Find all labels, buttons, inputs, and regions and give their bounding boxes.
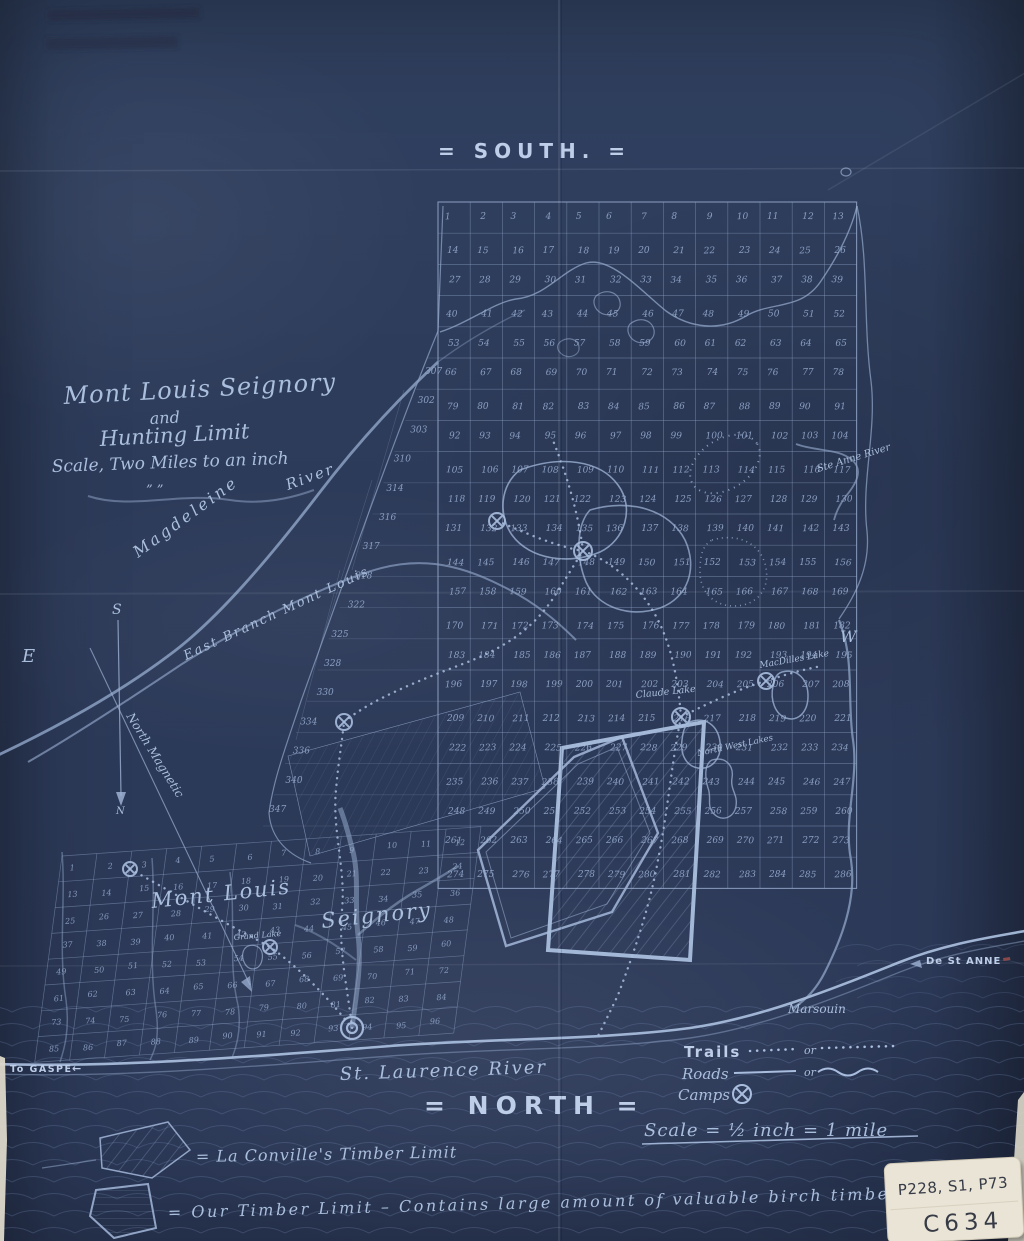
lot-number: 75 — [119, 1015, 130, 1025]
lot-number: 124 — [639, 494, 657, 505]
east-branch-label: East Branch Mont Louis — [180, 564, 372, 664]
lot-number: 153 — [739, 558, 757, 569]
lot-number: 3 — [510, 212, 516, 222]
lot-number: 72 — [641, 368, 653, 378]
lot-number: 284 — [768, 870, 786, 880]
to-gaspe-arrow: ← — [72, 1062, 81, 1075]
lot-number: 234 — [830, 743, 849, 754]
lot-number: 200 — [575, 680, 593, 690]
lot-number: 11 — [767, 212, 778, 222]
lot-number: 108 — [541, 465, 559, 476]
wave-row — [857, 993, 1024, 999]
lot-number: 7 — [641, 212, 647, 222]
lot-number: 76 — [767, 368, 779, 378]
lot-number: 14 — [447, 246, 459, 256]
lot-number: 191 — [705, 651, 722, 661]
our-limit-note: = Our Timber Limit – Contains large amou… — [168, 1184, 900, 1222]
lot-number: 174 — [577, 621, 595, 632]
legend-or-2: or — [804, 1066, 817, 1079]
lot-number: 247 — [832, 777, 851, 788]
lot-number: 271 — [766, 836, 785, 847]
grid-line — [62, 827, 481, 856]
lot-number: 20 — [637, 246, 650, 256]
lot-number: 185 — [513, 651, 530, 661]
compass-w-label: W — [840, 627, 858, 646]
lot-number: 13 — [832, 212, 844, 222]
lot-number: 214 — [607, 714, 626, 725]
lot-number: 125 — [674, 495, 691, 505]
lot-number: 101 — [736, 431, 753, 441]
lot-number: 37 — [62, 940, 74, 950]
lot-number: 3 — [141, 860, 147, 869]
lot-number: 139 — [706, 524, 724, 535]
our-limit-legend-swatch — [90, 1184, 156, 1238]
ditto-marks: ” ” — [146, 483, 163, 498]
lot-number: 9 — [706, 212, 712, 222]
wave-row — [836, 945, 1024, 951]
map-labels: = SOUTH. = = NORTH = Mont Louis Seignory… — [10, 139, 1010, 1120]
macdilles-lake-label: MacDilles Lake — [758, 649, 830, 671]
lot-number: 131 — [445, 524, 462, 534]
lot-number: 74 — [85, 1016, 96, 1026]
lot-number: 112 — [672, 465, 690, 476]
lot-number: 113 — [703, 466, 720, 476]
lot-number: 188 — [609, 651, 626, 661]
lot-number: 67 — [265, 979, 277, 989]
smudge-2 — [46, 36, 178, 50]
lot-number: 110 — [607, 466, 624, 476]
lot-number: 283 — [738, 870, 757, 881]
lot-number: 175 — [607, 621, 625, 632]
lot-number: 87 — [703, 402, 715, 412]
lot-number: 258 — [769, 807, 788, 818]
lot-number: 58 — [373, 945, 384, 955]
lot-number: 22 — [703, 246, 716, 256]
lot-number: 5 — [576, 212, 582, 222]
lot-number: 33 — [344, 896, 355, 906]
lot-number: 23 — [738, 246, 751, 256]
st-laurence-river-label: St. Laurence River — [339, 1057, 547, 1085]
lot-number: 75 — [737, 368, 749, 378]
west-edge-lot-number: 322 — [348, 601, 365, 611]
north-label: = NORTH = — [424, 1091, 645, 1120]
lot-number: 66 — [445, 368, 457, 378]
lot-number: 263 — [509, 836, 527, 846]
stream-1-path — [60, 852, 67, 1062]
lot-number: 183 — [448, 651, 466, 662]
lot-number: 74 — [707, 368, 719, 378]
catalog-sticker: P228, S1, P73 C634 — [884, 1157, 1024, 1241]
lot-number: 61 — [54, 994, 65, 1004]
lot-number: 134 — [546, 524, 563, 534]
lot-number: 52 — [833, 309, 845, 319]
lot-number: 47 — [671, 310, 684, 320]
lot-number: 119 — [478, 495, 495, 505]
lot-number: 178 — [703, 621, 721, 632]
lot-number: 245 — [767, 778, 785, 788]
west-edge-lot-number: 334 — [300, 717, 317, 727]
lot-number: 69 — [333, 973, 344, 983]
wave-row — [0, 1007, 1024, 1013]
legend-roads-label: Roads — [681, 1065, 729, 1083]
lot-number: 21 — [672, 246, 685, 256]
lot-number: 95 — [396, 1021, 407, 1031]
lot-number: 61 — [704, 339, 716, 349]
conville-note: = La Conville's Timber Limit — [196, 1142, 458, 1166]
magnetic-north-label: North Magnetic — [123, 709, 187, 800]
lot-number: 196 — [445, 680, 463, 691]
lot-number: 176 — [642, 622, 659, 632]
lot-number: 4 — [174, 856, 181, 865]
lot-number: 106 — [481, 465, 499, 476]
lot-number: 179 — [738, 622, 755, 632]
lot-number: 152 — [704, 558, 721, 568]
lot-number: 44 — [576, 310, 589, 320]
lot-number: 187 — [574, 651, 592, 662]
lot-number: 1 — [69, 863, 75, 872]
lot-number: 10 — [387, 841, 398, 851]
ste-anne-river-label: Ste Anne River — [816, 442, 893, 475]
crease-h3 — [0, 963, 1024, 966]
lot-number: 6 — [606, 212, 612, 222]
lot-number: 69 — [545, 368, 557, 378]
lot-number: 84 — [436, 993, 447, 1003]
lot-number: 65 — [193, 982, 204, 992]
grid-line — [265, 839, 321, 1045]
legend-camp-symbol — [733, 1085, 751, 1103]
lot-number: 142 — [802, 524, 820, 535]
west-edge-lot-number: 325 — [331, 630, 348, 640]
lot-number: 93 — [328, 1024, 339, 1034]
crease-h1 — [0, 168, 1024, 171]
lot-number: 129 — [800, 495, 818, 506]
lot-number: 83 — [578, 402, 590, 412]
lot-number: 102 — [771, 431, 789, 442]
lake-blob-1 — [503, 462, 626, 559]
lot-number: 205 — [736, 680, 755, 691]
grid-line — [90, 851, 146, 1057]
lot-number: 28 — [478, 275, 491, 285]
lot-number: 221 — [833, 714, 851, 724]
lot-number: 23 — [417, 866, 429, 876]
seignory-lot-grid: 1234567891011121314151617181920212223242… — [21, 827, 496, 1063]
lot-number: 5 — [209, 854, 215, 863]
lot-number: 12 — [455, 838, 466, 848]
lot-number: 50 — [94, 965, 105, 975]
lot-number: 70 — [367, 972, 378, 982]
lot-number: 48 — [442, 915, 454, 925]
lot-number: 16 — [512, 246, 524, 256]
west-edge-lot-number: 330 — [317, 688, 334, 698]
lot-number: 54 — [478, 339, 490, 349]
legend-camps-label: Camps — [678, 1086, 730, 1104]
pencil-smudges — [46, 7, 200, 50]
lot-number: 172 — [511, 621, 529, 632]
lot-number: 272 — [801, 836, 819, 846]
lot-number: 86 — [83, 1043, 94, 1053]
lot-number: 31 — [575, 275, 587, 285]
lot-number: 41 — [480, 310, 492, 320]
legend-trails-label: Trails — [684, 1043, 741, 1061]
lot-number: 78 — [832, 368, 844, 378]
lot-number: 67 — [480, 368, 492, 378]
crease-diagonal — [828, 70, 1024, 190]
grid-line — [160, 846, 216, 1052]
lot-number: 37 — [771, 275, 783, 285]
lot-number: 285 — [798, 870, 817, 881]
lot-number: 24 — [768, 246, 781, 256]
lot-number: 94 — [509, 431, 521, 441]
west-edge-lot-number: 328 — [324, 659, 341, 669]
lot-number: 104 — [831, 431, 848, 441]
lot-number: 96 — [575, 431, 587, 441]
lot-number: 17 — [543, 246, 555, 256]
lot-number: 276 — [511, 870, 530, 881]
lot-number: 269 — [706, 836, 724, 846]
lot-number: 133 — [510, 524, 528, 535]
lot-number: 111 — [642, 465, 660, 476]
lot-number: 215 — [637, 714, 655, 724]
lot-number: 71 — [606, 368, 617, 378]
lot-number: 81 — [512, 402, 524, 412]
lot-number: 32 — [610, 275, 622, 285]
map-title-line1: Mont Louis Seignory — [62, 368, 337, 410]
lot-number: 73 — [671, 368, 683, 378]
lot-number: 150 — [638, 558, 656, 569]
lot-number: 12 — [802, 212, 814, 222]
lot-number: 233 — [800, 743, 818, 753]
lot-number: 31 — [272, 902, 283, 912]
seignory-grid-inner: 1234567891011121314151617181920212223242… — [21, 827, 496, 1063]
lot-number: 18 — [578, 246, 590, 256]
lot-number: 51 — [803, 309, 815, 319]
lot-number: 14 — [101, 888, 112, 898]
lot-number: 243 — [701, 777, 720, 788]
west-edge-lot-number: 314 — [386, 484, 403, 494]
trail-path-3 — [497, 521, 583, 551]
conville-timber-limit-hatched — [548, 722, 704, 960]
lot-number: 82 — [364, 996, 375, 1006]
lot-number: 64 — [800, 339, 812, 349]
wave-row — [0, 1024, 1024, 1030]
lot-number: 77 — [802, 368, 814, 378]
lot-number: 48 — [701, 309, 714, 319]
lot-number: 4 — [544, 212, 551, 222]
lot-number: 1 — [445, 212, 451, 222]
lot-number: 170 — [446, 622, 463, 632]
lot-number: 232 — [770, 743, 789, 754]
lot-number: 126 — [704, 495, 722, 506]
lot-number: 145 — [477, 558, 495, 569]
lot-number: 50 — [768, 310, 780, 320]
lot-number: 72 — [439, 966, 450, 976]
lot-number: 55 — [513, 339, 525, 349]
lot-number: 114 — [738, 465, 756, 476]
lot-number: 20 — [312, 873, 324, 883]
legend-trail-sample-1 — [750, 1049, 798, 1051]
lot-number: 96 — [430, 1017, 441, 1027]
lot-number: 86 — [673, 402, 685, 412]
magnetic-arrowhead — [241, 976, 252, 992]
lot-number: 39 — [831, 275, 843, 285]
marsouin-label: Marsouin — [787, 1002, 846, 1016]
lot-number: 8 — [671, 212, 677, 222]
lot-number: 65 — [835, 339, 847, 349]
lot-number: 33 — [640, 275, 652, 285]
lot-number: 15 — [139, 883, 150, 893]
lot-number: 82 — [543, 402, 555, 412]
lot-number: 62 — [735, 339, 747, 349]
west-edge-lot-number: 310 — [394, 455, 411, 465]
lot-number: 147 — [542, 558, 560, 569]
fold-creases — [0, 0, 1024, 1241]
lot-number: 77 — [191, 1009, 203, 1019]
lot-number: 29 — [508, 275, 521, 285]
lot-number: 197 — [480, 680, 497, 690]
legend-trail-sample-2 — [822, 1046, 896, 1048]
lot-number: 127 — [735, 495, 753, 506]
lot-number: 143 — [832, 524, 849, 534]
lot-number: 212 — [542, 714, 560, 724]
lot-number: 73 — [51, 1017, 62, 1027]
lot-number: 30 — [238, 903, 249, 913]
lot-number: 43 — [541, 310, 554, 320]
boundary-east-path — [839, 206, 872, 619]
lot-number: 85 — [49, 1044, 60, 1054]
lot-number: 80 — [477, 402, 489, 412]
lot-number: 90 — [799, 402, 811, 412]
lot-number: 201 — [605, 680, 624, 691]
lot-number: 273 — [831, 836, 850, 847]
lot-number: 98 — [640, 431, 652, 441]
west-edge-lot-number: 317 — [363, 542, 380, 552]
lot-number: 91 — [834, 402, 846, 412]
lot-number: 58 — [609, 339, 621, 349]
lot-number: 180 — [768, 621, 786, 632]
lot-number: 60 — [674, 339, 686, 349]
conville-legend-swatch — [100, 1122, 190, 1178]
lot-number: 118 — [448, 494, 466, 505]
lot-number: 189 — [639, 651, 657, 662]
lot-number: 151 — [673, 558, 691, 569]
lot-number: 198 — [510, 680, 528, 691]
compass-n-label: N — [115, 806, 126, 817]
lot-number: 38 — [801, 275, 813, 285]
lot-number: 27 — [132, 910, 145, 920]
west-edge-lot-number: 347 — [269, 805, 286, 815]
lot-number: 60 — [441, 939, 452, 949]
lot-number: 88 — [739, 402, 751, 412]
lot-number: 2 — [479, 212, 486, 222]
lot-number: 32 — [310, 897, 321, 907]
lot-number: 177 — [672, 621, 690, 632]
to-gaspe-label: To GASPE — [10, 1064, 73, 1075]
lot-number: 141 — [767, 524, 785, 535]
west-edge-lot-number: 316 — [379, 513, 396, 523]
south-label: = SOUTH. = — [438, 139, 631, 163]
lot-number: 25 — [64, 916, 76, 926]
lot-number: 83 — [398, 994, 409, 1004]
lot-number: 62 — [87, 989, 98, 999]
lot-number: 35 — [706, 275, 718, 285]
lot-number: 219 — [768, 714, 787, 725]
coast-water-edge-path — [0, 940, 1024, 1075]
lot-number: 100 — [705, 431, 723, 442]
lot-number: 22 — [379, 868, 391, 878]
lot-number: 19 — [608, 246, 620, 256]
catalog-code-line2: C634 — [923, 1208, 1004, 1238]
lot-number: 76 — [157, 1010, 168, 1020]
lot-number: 140 — [737, 524, 754, 534]
lot-number: 70 — [576, 368, 588, 378]
lot-number: 53 — [196, 958, 207, 968]
blueprint-map: 1234567891011121314151617181920212223242… — [0, 0, 1024, 1241]
camp-symbol — [336, 714, 352, 730]
north-west-lakes-label: North West Lakes — [696, 733, 775, 759]
lot-number: 59 — [407, 943, 418, 953]
lot-number: 30 — [544, 275, 556, 285]
grid-line — [405, 829, 461, 1035]
lot-number: 71 — [405, 967, 416, 977]
lot-number: 36 — [736, 275, 748, 285]
lot-number: 195 — [835, 651, 853, 662]
lot-number: 87 — [116, 1038, 128, 1048]
lot-number: 38 — [96, 939, 107, 949]
lot-number: 115 — [768, 465, 786, 476]
lot-number: 181 — [803, 621, 821, 632]
lot-number: 6 — [247, 853, 253, 862]
lot-number: 246 — [802, 777, 821, 788]
lot-number: 15 — [477, 246, 489, 256]
lot-number: 41 — [201, 931, 213, 941]
smudge-1 — [48, 7, 200, 21]
lot-number: 282 — [702, 870, 721, 881]
lot-number: 155 — [799, 558, 816, 568]
lake-oval-dotted — [680, 423, 771, 506]
lot-number: 92 — [449, 431, 461, 441]
lot-number: 78 — [225, 1007, 236, 1017]
lot-number: 208 — [831, 680, 850, 691]
grid-line — [439, 827, 495, 1033]
lot-number: 52 — [162, 960, 173, 970]
lot-number: 171 — [481, 621, 499, 632]
lot-number: 122 — [574, 495, 591, 505]
lot-number: 192 — [735, 650, 753, 661]
lot-number: 97 — [610, 431, 622, 441]
lot-number: 90 — [222, 1031, 233, 1041]
lot-number: 93 — [479, 431, 491, 441]
lot-number: 91 — [256, 1030, 267, 1040]
lot-number: 36 — [450, 888, 461, 898]
mont-louis-grid-label: Mont Louis — [149, 874, 292, 913]
lot-number: 64 — [159, 986, 170, 996]
lot-number: 11 — [421, 839, 432, 849]
lot-number: 105 — [446, 465, 464, 476]
lot-number: 66 — [227, 981, 238, 991]
lot-number: 257 — [734, 807, 752, 817]
magdeleine-river-label2: River — [282, 460, 337, 495]
de-st-anne-label: De St ANNE — [926, 956, 1001, 967]
lot-number: 146 — [512, 558, 529, 568]
lot-number: 27 — [448, 275, 461, 285]
macdilles-lake-shape — [772, 671, 808, 719]
lot-number: 128 — [770, 495, 787, 505]
grid-line — [195, 844, 251, 1050]
lot-number: 89 — [769, 402, 781, 412]
map-scale-note: Scale, Two Miles to an inch — [51, 449, 288, 477]
lot-number: 40 — [445, 309, 458, 319]
lot-number: 63 — [770, 339, 782, 349]
